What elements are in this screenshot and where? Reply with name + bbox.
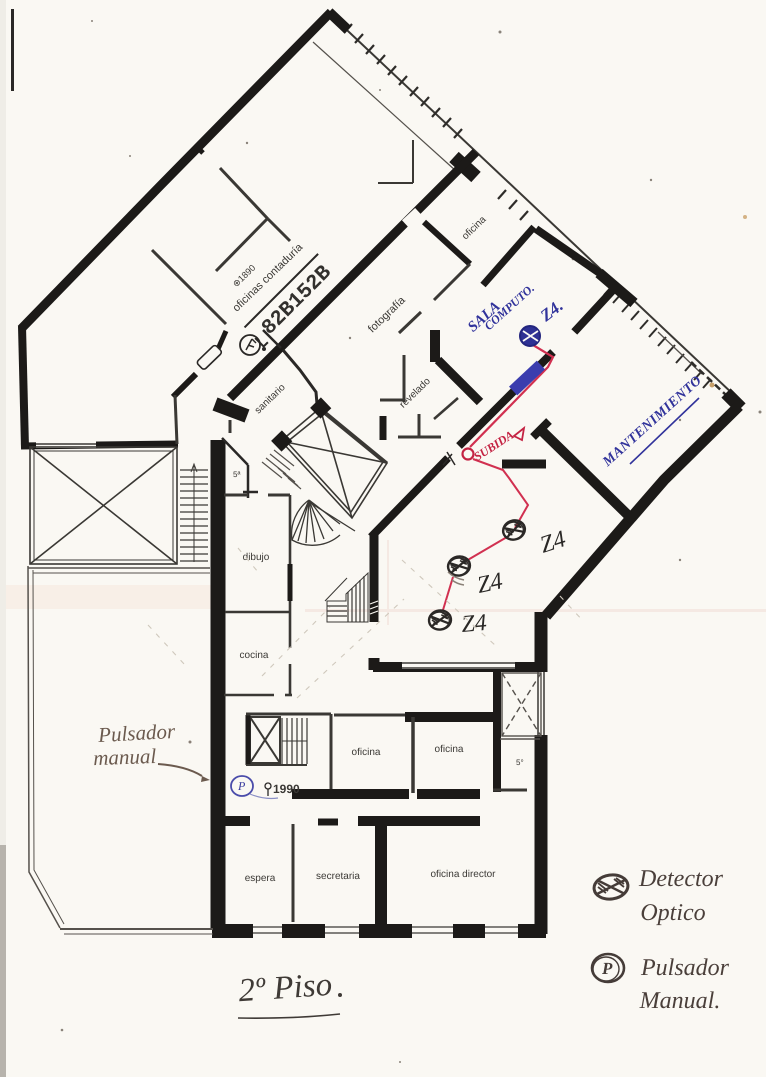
svg-text:cocina: cocina [240,650,269,661]
svg-text:5ª: 5ª [233,470,240,479]
svg-text:Z4: Z4 [475,568,505,599]
svg-text:Manual.: Manual. [639,988,721,1014]
svg-text:oficina director: oficina director [430,869,496,880]
svg-text:Pulsador: Pulsador [640,955,730,981]
svg-text:5°: 5° [516,758,524,767]
svg-text:P: P [601,959,613,978]
svg-text:Pulsador: Pulsador [97,719,177,747]
svg-text:oficina: oficina [352,747,381,758]
svg-text:P: P [237,779,246,793]
svg-text:espera: espera [245,873,276,884]
svg-text:Detector: Detector [638,866,724,892]
svg-text:Z4: Z4 [460,610,488,638]
svg-text:1990: 1990 [273,782,300,796]
svg-text:manual: manual [93,744,157,770]
svg-text:dibujo: dibujo [243,552,270,563]
svg-text:Optico: Optico [640,900,705,926]
svg-text:oficina: oficina [435,744,464,755]
svg-text:secretaria: secretaria [316,871,360,882]
svg-text:2º Piso: 2º Piso [237,967,333,1009]
